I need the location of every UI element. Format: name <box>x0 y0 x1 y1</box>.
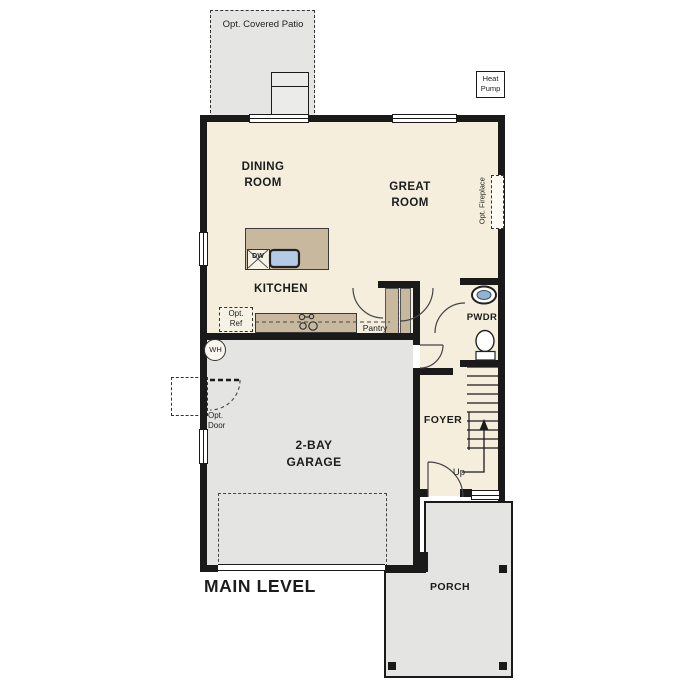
foyer-label: FOYER <box>419 413 467 428</box>
wall-pantry-top <box>378 281 420 288</box>
kitchen-base-counter <box>255 313 357 333</box>
wall-powder-top <box>460 278 498 285</box>
porch-post <box>499 662 507 670</box>
main-level-title: MAIN LEVEL <box>204 574 364 599</box>
powder-label: PWDR <box>462 311 502 324</box>
dishwasher-label: DW <box>248 253 268 262</box>
closet-wall-right <box>400 288 411 337</box>
window-foyer-front <box>471 490 500 500</box>
pantry-label: Pantry <box>356 323 394 334</box>
garage-door <box>218 564 385 571</box>
window-great-top <box>392 114 457 123</box>
window-garage-left <box>199 429 208 464</box>
chimney-structure <box>271 72 309 115</box>
opt-covered-patio-label: Opt. Covered Patio <box>213 19 313 31</box>
water-heater-label: WH <box>204 345 227 354</box>
wall-top <box>200 115 505 122</box>
kitchen-label: KITCHEN <box>236 281 326 297</box>
porch-post <box>499 565 507 573</box>
great-room-label: GREAT ROOM <box>365 179 455 211</box>
wall-porch-notch <box>418 552 428 572</box>
porch-post <box>388 662 396 670</box>
wall-garage-right-upper <box>413 281 420 345</box>
wall-foyer-top <box>420 368 453 375</box>
dining-room-label: DINING ROOM <box>218 159 308 191</box>
window-dining-left <box>199 232 208 266</box>
opt-door-label: Opt. Door <box>208 411 238 431</box>
opt-fireplace-box <box>491 175 504 229</box>
wall-garage-right-lower <box>413 368 420 572</box>
up-label: Up <box>450 467 468 479</box>
wall-foyer-bottom-left <box>413 489 428 497</box>
wall-powder-bottom <box>460 360 498 367</box>
opt-ref-label: Opt. Ref <box>220 309 252 329</box>
wall-right <box>498 115 505 503</box>
heat-pump-label: Heat Pump <box>476 74 505 94</box>
opt-fireplace-label: Opt. Fireplace <box>477 166 486 236</box>
garage-label: 2-BAY GARAGE <box>269 437 359 471</box>
window-dining-top <box>249 114 309 123</box>
floor-plan-canvas: Opt. Covered Patio Heat Pump <box>0 0 687 687</box>
wall-left-upper <box>200 115 207 340</box>
wall-garage-bottom-left <box>200 565 218 572</box>
garage-parking-outline <box>218 493 387 567</box>
wall-kitchen-garage <box>200 333 420 340</box>
porch-label: PORCH <box>424 580 476 595</box>
